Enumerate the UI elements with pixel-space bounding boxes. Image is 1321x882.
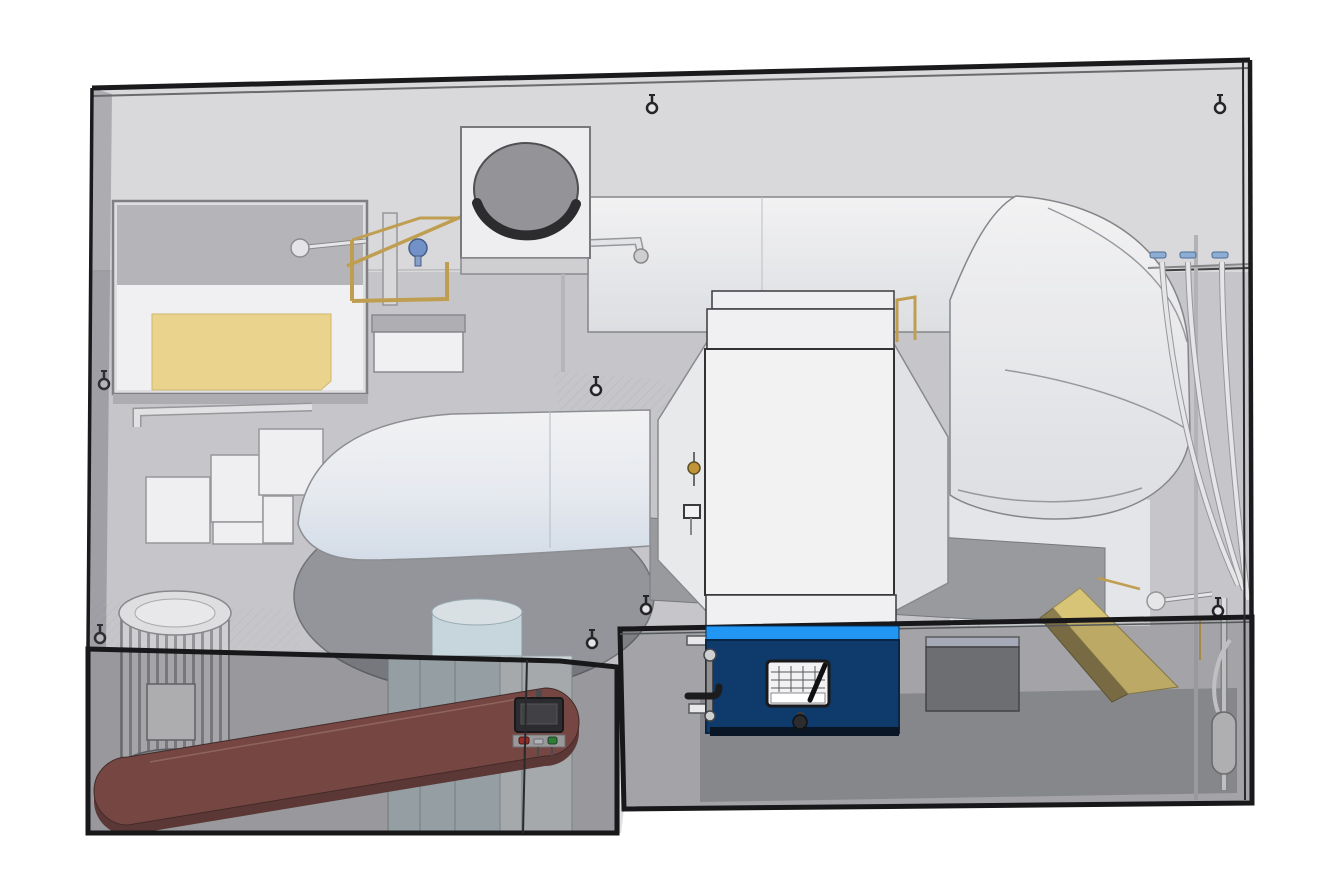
door-hinge-bar[interactable] (706, 652, 713, 718)
cad-viewport (0, 0, 1321, 882)
glass-enclosure (88, 60, 1252, 833)
burner-top-strip (706, 626, 899, 640)
burner-knob[interactable] (793, 715, 807, 729)
burner-nameplate (767, 661, 829, 706)
nameplate-footer (771, 693, 825, 703)
glass-main-overlay (88, 60, 1252, 667)
hinge-knob-bottom (705, 711, 715, 721)
cad-render (0, 0, 1321, 882)
burner-cabinet (687, 626, 899, 736)
enclosure-right-edge (1250, 60, 1252, 803)
glass-left-box (88, 649, 617, 833)
hinge-knob-top (704, 649, 716, 661)
burner-left-stub (689, 704, 707, 713)
burner-left-stub (687, 636, 707, 645)
burner-bottom-strip (710, 727, 899, 736)
